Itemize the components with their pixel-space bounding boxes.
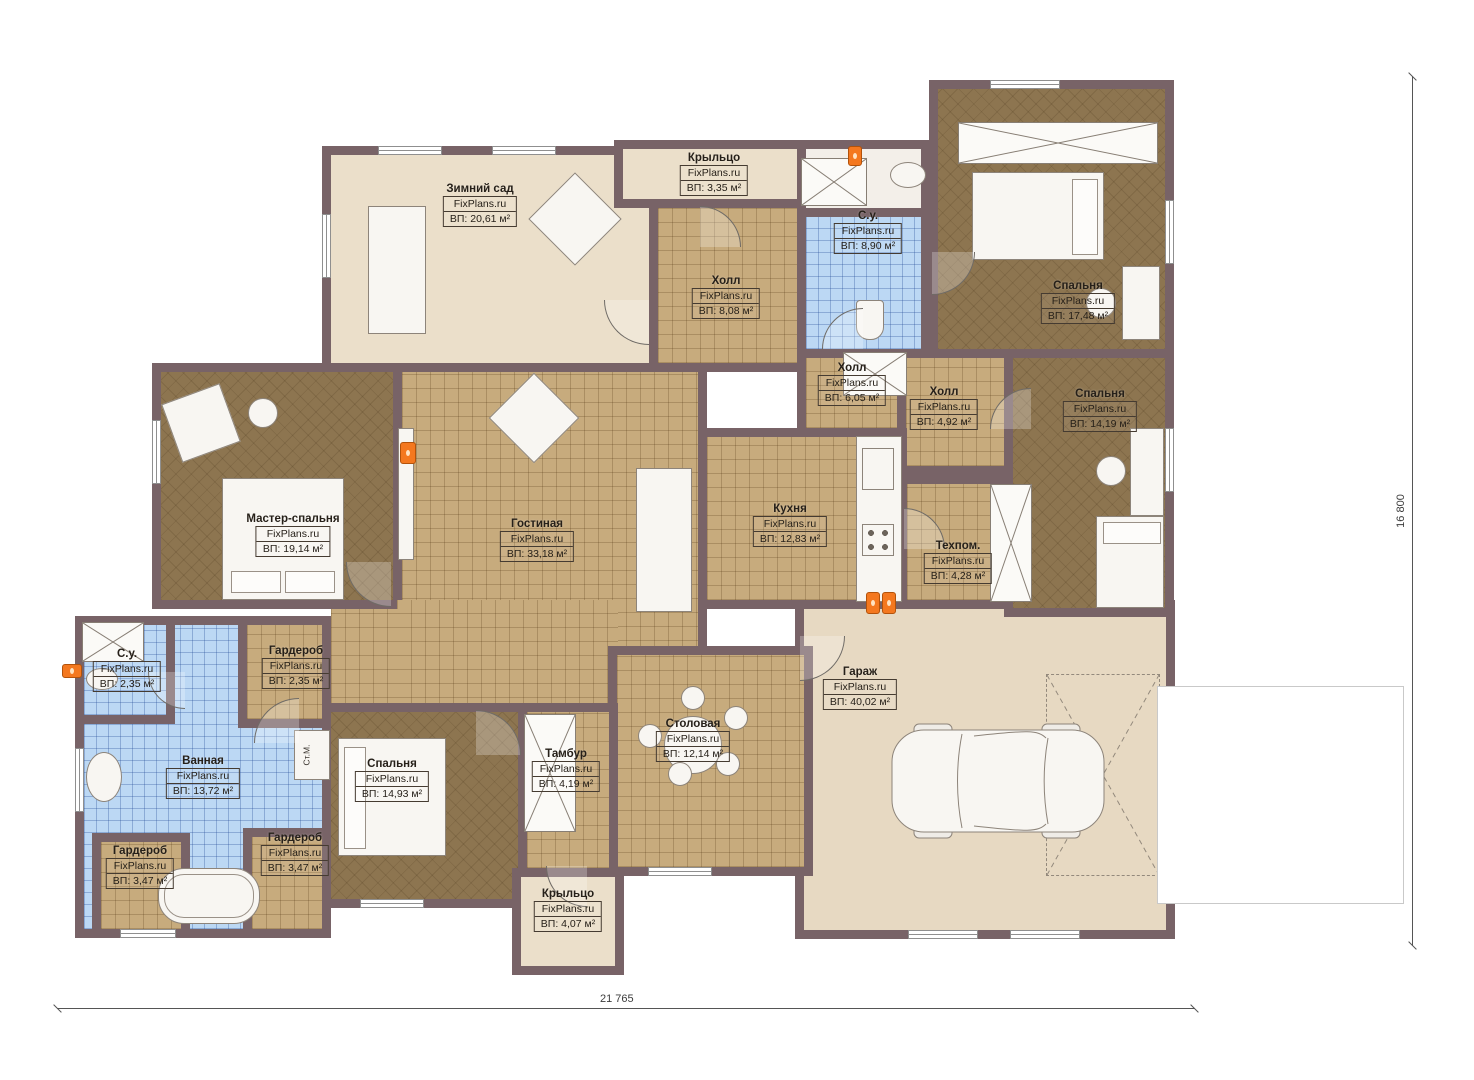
brand-line: FixPlans.ru — [754, 517, 826, 532]
room-label-hall-5: Холл FixPlans.ruВП: 4,92 м² — [910, 386, 978, 430]
car — [878, 722, 1118, 845]
room-area: ВП: 19,14 м² — [257, 542, 329, 556]
room-area: ВП: 12,14 м² — [657, 747, 729, 761]
room-area: ВП: 13,72 м² — [167, 784, 239, 798]
room-name: Гардероб — [262, 645, 330, 657]
chair — [668, 762, 692, 786]
garage-apron-outline — [1157, 686, 1404, 904]
room-label-bedroom-bottom: Спальня FixPlans.ruВП: 14,93 м² — [355, 758, 429, 802]
dimension-height-label: 16 800 — [1395, 494, 1407, 528]
window — [152, 420, 161, 484]
room-area: ВП: 3,35 м² — [681, 181, 747, 195]
room-label-wardrobe-3b: Гардероб FixPlans.ruВП: 3,47 м² — [261, 832, 329, 876]
boiler-marker-icon — [882, 592, 896, 614]
desk — [1122, 266, 1160, 340]
chair — [1096, 456, 1126, 486]
window — [75, 748, 84, 812]
window — [648, 867, 712, 876]
room-name: Столовая — [656, 718, 730, 730]
room-area: ВП: 33,18 м² — [501, 547, 573, 561]
room-name: Ванная — [166, 755, 240, 767]
side-table — [248, 398, 278, 428]
room-name: Крыльцо — [680, 152, 748, 164]
sink — [890, 162, 926, 188]
wardrobe-cabinet — [958, 122, 1158, 164]
room-area: ВП: 8,90 м² — [835, 239, 901, 253]
room-area: ВП: 8,08 м² — [693, 304, 759, 318]
brand-line: FixPlans.ru — [107, 859, 173, 874]
room-name: С.у. — [834, 210, 902, 222]
boiler-marker-icon — [848, 146, 862, 166]
room-area: ВП: 4,07 м² — [535, 917, 601, 931]
room-label-winter-garden: Зимний сад FixPlans.ruВП: 20,61 м² — [443, 183, 517, 227]
room-name: Зимний сад — [443, 183, 517, 195]
room-label-hall-6: Холл FixPlans.ruВП: 6,05 м² — [818, 362, 886, 406]
room-area: ВП: 12,83 м² — [754, 532, 826, 546]
brand-line: FixPlans.ru — [257, 527, 329, 542]
brand-line: FixPlans.ru — [819, 376, 885, 391]
dimension-width-label: 21 765 — [600, 993, 634, 1005]
brand-line: FixPlans.ru — [535, 902, 601, 917]
room-name: Спальня — [1041, 280, 1115, 292]
room-name: Крыльцо — [534, 888, 602, 900]
window — [1010, 930, 1080, 939]
room-label-bathroom: Ванная FixPlans.ruВП: 13,72 м² — [166, 755, 240, 799]
room-name: Гараж — [823, 666, 897, 678]
room-label-wc-small: С.у. FixPlans.ruВП: 2,35 м² — [93, 648, 161, 692]
room-label-garage: Гараж FixPlans.ruВП: 40,02 м² — [823, 666, 897, 710]
desk — [1130, 428, 1164, 516]
room-corridor-b — [331, 609, 401, 712]
room-area: ВП: 2,35 м² — [94, 677, 160, 691]
closet — [990, 484, 1032, 602]
window — [378, 146, 442, 155]
bed — [1096, 516, 1164, 608]
room-label-kitchen: Кухня FixPlans.ruВП: 12,83 м² — [753, 503, 827, 547]
chair — [681, 686, 705, 710]
brand-line: FixPlans.ru — [1064, 402, 1136, 417]
room-label-porch-bottom: Крыльцо FixPlans.ruВП: 4,07 м² — [534, 888, 602, 932]
brand-line: FixPlans.ru — [835, 224, 901, 239]
brand-line: FixPlans.ru — [167, 769, 239, 784]
room-area: ВП: 2,35 м² — [263, 674, 329, 688]
brand-line: FixPlans.ru — [356, 772, 428, 787]
window — [1165, 428, 1174, 492]
room-area: ВП: 3,47 м² — [262, 861, 328, 875]
room-label-living: Гостиная FixPlans.ruВП: 33,18 м² — [500, 518, 574, 562]
window — [360, 899, 424, 908]
room-label-hall-top: Холл FixPlans.ruВП: 8,08 м² — [692, 275, 760, 319]
brand-line: FixPlans.ru — [925, 554, 991, 569]
boiler-marker-icon — [62, 664, 82, 678]
room-name: С.у. — [93, 648, 161, 660]
window — [1165, 200, 1174, 264]
room-label-bedroom-right: Спальня FixPlans.ruВП: 14,19 м² — [1063, 388, 1137, 432]
floor-plan: Ст.М. — [0, 0, 1474, 1080]
boiler-marker-icon — [400, 442, 416, 464]
brand-line: FixPlans.ru — [444, 197, 516, 212]
sofa — [636, 468, 692, 612]
room-label-master-bedroom: Мастер-спальня FixPlans.ruВП: 19,14 м² — [246, 513, 339, 557]
room-name: Кухня — [753, 503, 827, 515]
brand-line: FixPlans.ru — [94, 662, 160, 677]
room-label-tambour: Тамбур FixPlans.ruВП: 4,19 м² — [532, 748, 600, 792]
brand-line: FixPlans.ru — [824, 680, 896, 695]
room-area: ВП: 3,47 м² — [107, 874, 173, 888]
brand-line: FixPlans.ru — [911, 400, 977, 415]
room-name: Мастер-спальня — [246, 513, 339, 525]
room-label-bedroom-top-right: Спальня FixPlans.ruВП: 17,48 м² — [1041, 280, 1115, 324]
bed — [972, 172, 1104, 260]
room-name: Гостиная — [500, 518, 574, 530]
room-name: Тамбур — [532, 748, 600, 760]
sofa — [368, 206, 426, 334]
washing-machine — [294, 730, 330, 780]
brand-line: FixPlans.ru — [501, 532, 573, 547]
dimension-line-bottom — [57, 1008, 1195, 1009]
boiler-marker-icon — [866, 592, 880, 614]
brand-line: FixPlans.ru — [262, 846, 328, 861]
brand-line: FixPlans.ru — [263, 659, 329, 674]
brand-line: FixPlans.ru — [693, 289, 759, 304]
room-area: ВП: 4,28 м² — [925, 569, 991, 583]
room-name: Спальня — [1063, 388, 1137, 400]
room-area: ВП: 20,61 м² — [444, 212, 516, 226]
window — [120, 929, 176, 938]
room-area: ВП: 14,19 м² — [1064, 417, 1136, 431]
brand-line: FixPlans.ru — [533, 762, 599, 777]
room-name: Холл — [692, 275, 760, 287]
room-name: Гардероб — [106, 845, 174, 857]
dimension-line-right — [1412, 76, 1413, 946]
brand-line: FixPlans.ru — [657, 732, 729, 747]
washing-machine-label: Ст.М. — [301, 745, 311, 766]
brand-line: FixPlans.ru — [1042, 294, 1114, 309]
stove — [862, 524, 894, 556]
window — [492, 146, 556, 155]
room-label-tech: Техпом. FixPlans.ruВП: 4,28 м² — [924, 540, 992, 584]
room-corridor-a — [397, 600, 618, 712]
room-name: Холл — [910, 386, 978, 398]
kitchen-sink — [862, 448, 894, 490]
room-area: ВП: 4,19 м² — [533, 777, 599, 791]
room-area: ВП: 6,05 м² — [819, 391, 885, 405]
sink — [86, 752, 122, 802]
window — [908, 930, 978, 939]
room-area: ВП: 4,92 м² — [911, 415, 977, 429]
room-name: Холл — [818, 362, 886, 374]
room-name: Спальня — [355, 758, 429, 770]
room-label-dining: Столовая FixPlans.ruВП: 12,14 м² — [656, 718, 730, 762]
brand-line: FixPlans.ru — [681, 166, 747, 181]
window — [322, 214, 331, 278]
room-name: Гардероб — [261, 832, 329, 844]
room-label-wardrobe-3a: Гардероб FixPlans.ruВП: 3,47 м² — [106, 845, 174, 889]
room-area: ВП: 17,48 м² — [1042, 309, 1114, 323]
room-label-bathroom-top: С.у. FixPlans.ruВП: 8,90 м² — [834, 210, 902, 254]
window — [990, 80, 1060, 89]
room-name: Техпом. — [924, 540, 992, 552]
room-label-wardrobe-2: Гардероб FixPlans.ruВП: 2,35 м² — [262, 645, 330, 689]
room-area: ВП: 14,93 м² — [356, 787, 428, 801]
room-area: ВП: 40,02 м² — [824, 695, 896, 709]
room-label-porch-top: Крыльцо FixPlans.ruВП: 3,35 м² — [680, 152, 748, 196]
